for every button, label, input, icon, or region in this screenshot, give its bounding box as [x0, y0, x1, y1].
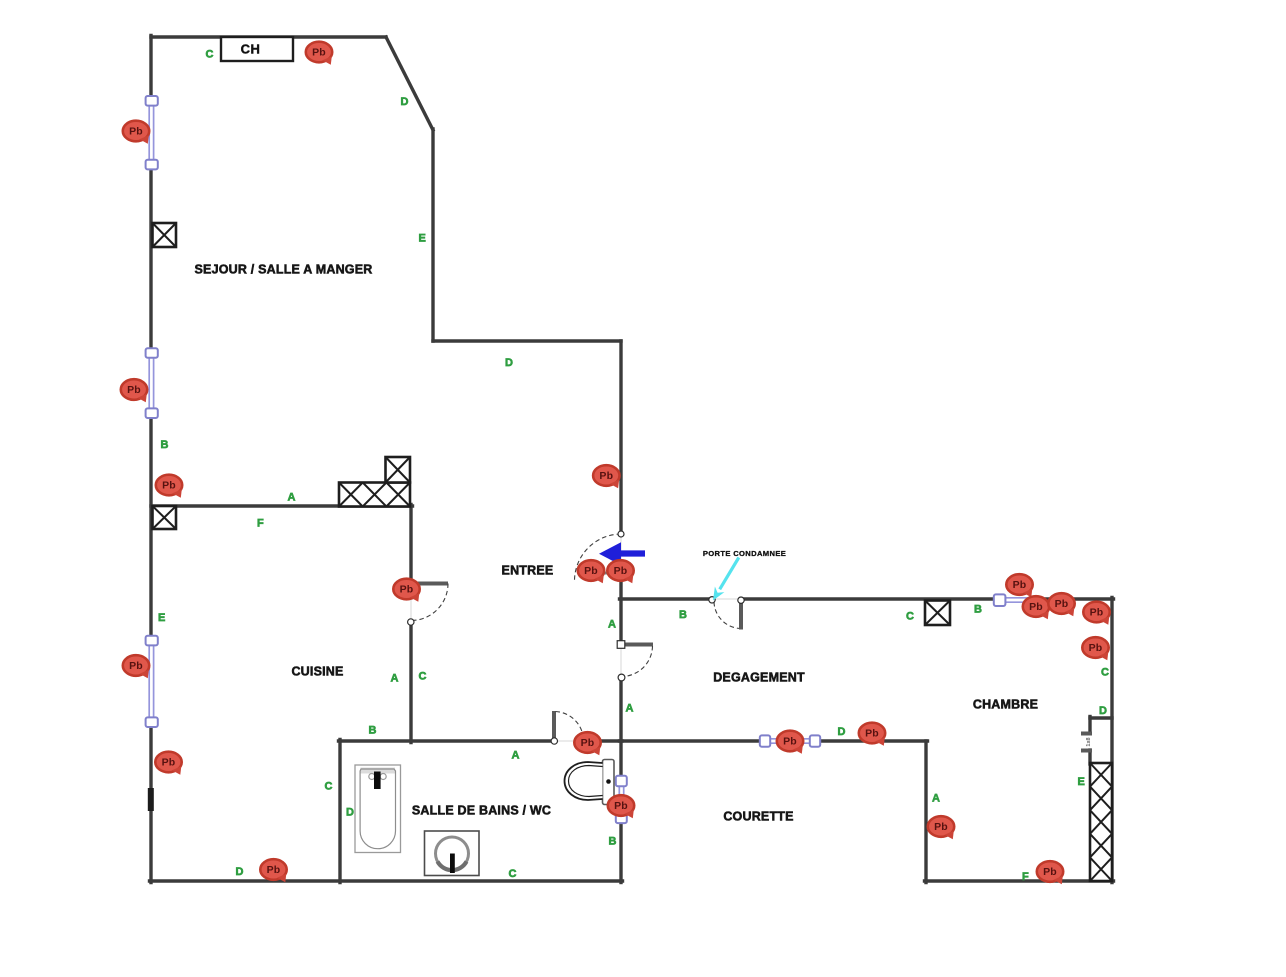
svg-text:D: D [346, 807, 354, 819]
svg-text:B: B [369, 725, 377, 737]
svg-text:C: C [509, 868, 517, 880]
svg-text:B: B [974, 604, 982, 616]
svg-text:SEJOUR / SALLE A MANGER: SEJOUR / SALLE A MANGER [195, 263, 373, 277]
svg-text:E: E [158, 612, 165, 624]
svg-text:A: A [391, 673, 399, 685]
svg-text:1x8: 1x8 [1086, 737, 1092, 746]
svg-text:B: B [679, 609, 687, 621]
svg-text:A: A [932, 793, 940, 805]
svg-text:C: C [419, 671, 427, 683]
svg-text:D: D [838, 726, 846, 738]
svg-text:D: D [401, 96, 409, 108]
svg-text:D: D [1099, 705, 1107, 717]
svg-text:CH: CH [241, 42, 261, 57]
svg-text:COURETTE: COURETTE [723, 810, 793, 824]
svg-text:ENTREE: ENTREE [502, 564, 554, 578]
svg-text:C: C [325, 781, 333, 793]
svg-text:A: A [288, 492, 296, 504]
svg-text:B: B [161, 439, 169, 451]
svg-text:CUISINE: CUISINE [291, 665, 343, 679]
svg-text:F: F [257, 518, 264, 530]
svg-text:A: A [512, 750, 520, 762]
svg-text:A: A [626, 703, 634, 715]
svg-text:CHAMBRE: CHAMBRE [973, 698, 1038, 712]
svg-text:C: C [906, 611, 914, 623]
svg-text:D: D [505, 357, 513, 369]
svg-text:PORTE CONDAMNEE: PORTE CONDAMNEE [703, 549, 786, 558]
svg-text:DEGAGEMENT: DEGAGEMENT [713, 671, 805, 685]
svg-text:E: E [1078, 776, 1085, 788]
svg-text:B: B [609, 836, 617, 848]
svg-text:C: C [206, 49, 214, 61]
svg-text:SALLE DE BAINS / WC: SALLE DE BAINS / WC [412, 804, 551, 818]
svg-text:E: E [419, 233, 426, 245]
svg-text:D: D [236, 866, 244, 878]
svg-text:C: C [1101, 667, 1109, 679]
svg-text:A: A [608, 619, 616, 631]
svg-text:F: F [1022, 871, 1029, 883]
